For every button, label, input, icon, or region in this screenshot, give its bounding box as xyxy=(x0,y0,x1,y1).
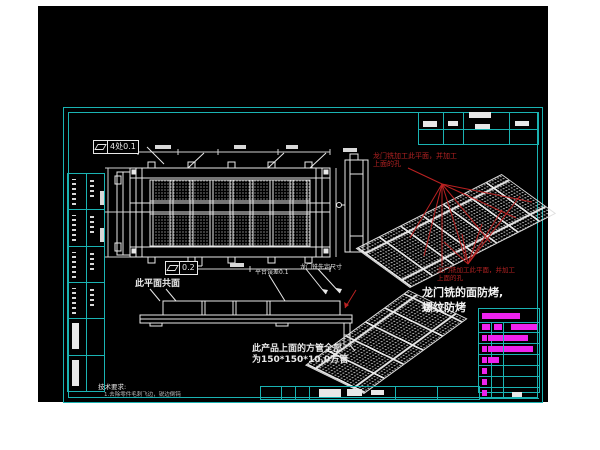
cad-application-page: 4处0.1 0.2 此平面共面 平台误差0.1 龙门铣先定尺寸 龙门铣加工此平面… xyxy=(0,0,600,450)
bom-row xyxy=(479,322,539,333)
red-note-bottom: 龙门铣加工此平面，并加工 上面的孔 xyxy=(437,266,515,282)
red-note-top-line2: 上面的孔 xyxy=(373,160,457,168)
square-tube-note: 此产品上面的方管全部 为150*150*10.0方管 xyxy=(252,344,348,366)
strip-divider xyxy=(309,387,310,399)
bom-row xyxy=(479,377,539,388)
dimension-text-mark xyxy=(286,145,298,149)
strip-text-block xyxy=(371,390,384,395)
bom-cell-text-bar xyxy=(488,335,528,341)
cad-drawing-canvas: 4处0.1 0.2 此平面共面 平台误差0.1 龙门铣先定尺寸 龙门铣加工此平面… xyxy=(38,6,548,402)
bom-cell-text-bar xyxy=(482,357,487,363)
strip-divider xyxy=(437,387,438,399)
strip-divider xyxy=(395,387,396,399)
red-note-top: 龙门铣加工此平面，并加工 上面的孔 xyxy=(373,152,457,168)
bom-row xyxy=(479,333,539,344)
bom-table-header xyxy=(479,309,539,323)
tube-note-line2: 为150*150*10.0方管 xyxy=(252,355,348,366)
dimension-text-mark xyxy=(100,191,104,205)
bom-row xyxy=(479,344,539,355)
strip-text-block xyxy=(512,392,522,397)
bom-row xyxy=(479,388,539,399)
bom-cell-text-bar xyxy=(494,324,502,330)
flatness-tolerance-top: 4处0.1 xyxy=(93,140,139,154)
bom-cell-text-bar xyxy=(482,368,487,374)
dimension-text-mark xyxy=(230,263,244,267)
tolerance-value: 4处0.1 xyxy=(108,142,138,152)
strip-divider xyxy=(281,387,282,399)
bom-cell-text-bar xyxy=(482,346,487,352)
gantry-size-label: 龙门铣先定尺寸 xyxy=(300,262,342,271)
bom-rows xyxy=(479,322,539,399)
red-note-bottom-line1: 龙门铣加工此平面，并加工 xyxy=(437,266,515,274)
plan-left-protrusion xyxy=(115,172,130,255)
bom-cell-text-bar xyxy=(482,335,487,341)
plan-dimensions xyxy=(105,149,336,272)
red-note-bottom-line2: 上面的孔 xyxy=(437,274,515,282)
lineart-layer xyxy=(38,6,548,402)
tube-note-line1: 此产品上面的方管全部 xyxy=(252,344,348,355)
dimension-text-mark xyxy=(343,148,357,152)
bom-cell-text-bar xyxy=(488,357,499,363)
bom-cell-text-bar xyxy=(511,324,537,330)
bom-cell-text-bar xyxy=(482,390,487,396)
strip-text-block xyxy=(347,389,362,396)
big-note-line1: 龙门铣的面防烤, xyxy=(422,285,503,300)
red-note-top-line1: 龙门铣加工此平面，并加工 xyxy=(373,152,457,160)
flatness-symbol-icon xyxy=(94,141,108,153)
flatness-tolerance-mid: 0.2 xyxy=(165,261,198,275)
dimension-text-mark xyxy=(234,145,246,149)
strip-text-block xyxy=(319,389,341,397)
dimension-text-mark xyxy=(100,228,104,242)
tolerance-value: 0.2 xyxy=(180,263,197,273)
bom-header-text-bar xyxy=(482,313,520,319)
dimension-text-mark xyxy=(155,145,171,149)
bom-row xyxy=(479,355,539,366)
bom-cell-text-bar xyxy=(482,324,490,330)
strip-divider xyxy=(295,387,296,399)
plan-view xyxy=(105,147,336,272)
plan-diagonal-leaders xyxy=(147,147,326,168)
bom-cell-text-bar xyxy=(488,346,533,352)
coplanar-label: 此平面共面 xyxy=(135,276,180,289)
flatness-symbol-icon xyxy=(166,262,180,274)
bom-row xyxy=(479,366,539,377)
bom-cell-text-bar xyxy=(482,379,487,385)
section-view xyxy=(337,154,369,252)
bottom-title-strip xyxy=(260,386,480,400)
tech-requirements-item: 1.去除零件毛刺飞边，锐边倒钝 xyxy=(104,390,181,398)
platform-error-label: 平台误差0.1 xyxy=(255,267,289,276)
bom-table xyxy=(478,308,540,393)
